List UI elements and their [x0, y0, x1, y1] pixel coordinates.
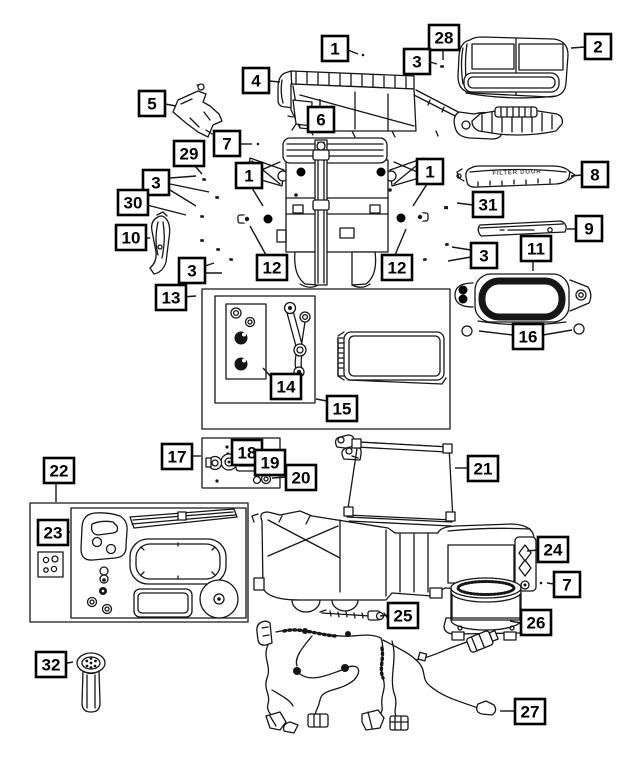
- callout-leader-line: [348, 50, 358, 54]
- callout-1[interactable]: 1: [322, 36, 358, 61]
- callout-27[interactable]: 27: [500, 699, 545, 724]
- callout-number: 26: [527, 614, 546, 633]
- part-heater-core: [338, 332, 446, 384]
- callout-number: 17: [168, 448, 187, 467]
- callout-leader-line: [170, 176, 196, 178]
- part-screw-1-top: [359, 51, 366, 58]
- callout-5[interactable]: 5: [139, 91, 176, 116]
- callout-number: 30: [124, 194, 143, 213]
- callout-number: 32: [42, 656, 61, 675]
- callout-number: 8: [590, 166, 599, 185]
- callout-number: 1: [330, 40, 339, 59]
- callout-9[interactable]: 9: [567, 216, 602, 241]
- callout-number: 27: [521, 703, 540, 722]
- callout-leader-line: [170, 190, 196, 206]
- callout-number: 18: [238, 444, 257, 463]
- callout-12[interactable]: 12: [250, 226, 287, 280]
- callout-7[interactable]: 7: [547, 572, 580, 597]
- callout-number: 28: [435, 29, 454, 48]
- part-side-bracket-10: [150, 212, 170, 274]
- callout-number: 4: [251, 72, 261, 91]
- callout-21[interactable]: 21: [455, 456, 498, 481]
- callout-leader-line: [165, 104, 176, 106]
- callout-number: 3: [412, 53, 421, 72]
- callout-number: 10: [122, 229, 141, 248]
- callout-1[interactable]: 1: [413, 159, 443, 206]
- hvac-exploded-diagram: FILTER DOOR: [0, 0, 640, 777]
- part-evaporator-21: [336, 435, 455, 526]
- callout-number: 22: [50, 462, 69, 481]
- callout-number: 19: [261, 454, 280, 473]
- callout-leader-line: [272, 477, 286, 478]
- callout-number: 1: [244, 167, 253, 186]
- callout-number: 24: [544, 541, 563, 560]
- callout-29[interactable]: 29: [174, 141, 204, 174]
- callout-leader-line: [457, 203, 473, 205]
- callout-number: 21: [474, 460, 493, 479]
- callout-number: 7: [222, 135, 231, 154]
- callout-number: 2: [593, 38, 602, 57]
- callout-leader-line: [543, 330, 572, 335]
- callout-number: 29: [180, 145, 199, 164]
- callout-4[interactable]: 4: [243, 68, 280, 93]
- callout-leader-line: [571, 175, 582, 176]
- callout-number: 11: [527, 240, 545, 259]
- callout-number: 3: [151, 174, 160, 193]
- callout-number: 7: [562, 576, 571, 595]
- part-screw-7-bottom: [537, 579, 544, 586]
- callout-11[interactable]: 11: [521, 236, 551, 271]
- diagram-artwork: FILTER DOOR: [30, 37, 591, 733]
- part-actuator-rod-25: [320, 610, 388, 620]
- parts-diagram-page: FILTER DOOR: [0, 0, 640, 777]
- callout-leader-line: [252, 188, 263, 206]
- callout-number: 1: [425, 163, 434, 182]
- callout-number: 25: [394, 607, 413, 626]
- part-cowl-grille-2: [458, 37, 568, 98]
- callout-leader-line: [269, 81, 280, 82]
- callout-32[interactable]: 32: [36, 652, 73, 677]
- callout-number: 14: [277, 378, 296, 397]
- callout-3[interactable]: 3: [179, 258, 222, 283]
- callout-leader-line: [250, 226, 266, 255]
- callout-28[interactable]: 28: [429, 25, 459, 60]
- callout-number: 3: [187, 262, 196, 281]
- callout-number: 13: [162, 289, 181, 308]
- part-label-strip-9: [478, 221, 566, 236]
- callout-31[interactable]: 31: [457, 192, 503, 217]
- callout-leader-line: [452, 247, 471, 250]
- part-mounting-bracket-5: [173, 84, 222, 137]
- callout-number: 16: [519, 328, 538, 347]
- part-seal-set-23: [38, 552, 63, 577]
- part-duct-seal-11: [455, 274, 591, 325]
- callout-number: 23: [44, 524, 63, 543]
- callout-23[interactable]: 23: [38, 520, 70, 545]
- callout-16[interactable]: 16: [479, 324, 572, 349]
- callout-number: 12: [263, 259, 282, 278]
- callout-leader-line: [571, 47, 585, 48]
- callout-19[interactable]: 19: [255, 450, 285, 475]
- callout-8[interactable]: 8: [571, 162, 608, 187]
- callout-1[interactable]: 1: [236, 163, 263, 206]
- part-filter-door-8: FILTER DOOR: [457, 166, 575, 187]
- callout-3[interactable]: 3: [404, 49, 437, 74]
- callout-10[interactable]: 10: [116, 225, 150, 250]
- part-bolt-32: [77, 653, 105, 712]
- callout-number: 31: [479, 196, 498, 215]
- callout-number: 12: [388, 259, 407, 278]
- callout-17[interactable]: 17: [162, 444, 201, 469]
- callout-number: 5: [147, 95, 156, 114]
- callout-22[interactable]: 22: [44, 458, 74, 502]
- callout-number: 15: [333, 400, 352, 419]
- callout-7[interactable]: 7: [214, 131, 252, 156]
- callout-leader-line: [413, 184, 427, 206]
- callout-3[interactable]: 3: [448, 243, 497, 268]
- callout-leader-line: [395, 229, 406, 255]
- callout-number: 20: [292, 469, 311, 488]
- callout-number: 6: [316, 111, 325, 130]
- callout-2[interactable]: 2: [571, 34, 611, 59]
- callout-leader-line: [205, 263, 214, 266]
- callout-number: 3: [479, 247, 488, 266]
- callout-number: 9: [584, 220, 593, 239]
- callout-13[interactable]: 13: [156, 285, 196, 310]
- callout-leader-line: [479, 331, 513, 335]
- callout-3[interactable]: 3: [143, 170, 209, 206]
- part-screw-7-top: [254, 140, 261, 147]
- callout-leader-line: [448, 257, 471, 261]
- callout-leader-line: [527, 550, 538, 551]
- callout-25[interactable]: 25: [380, 603, 418, 628]
